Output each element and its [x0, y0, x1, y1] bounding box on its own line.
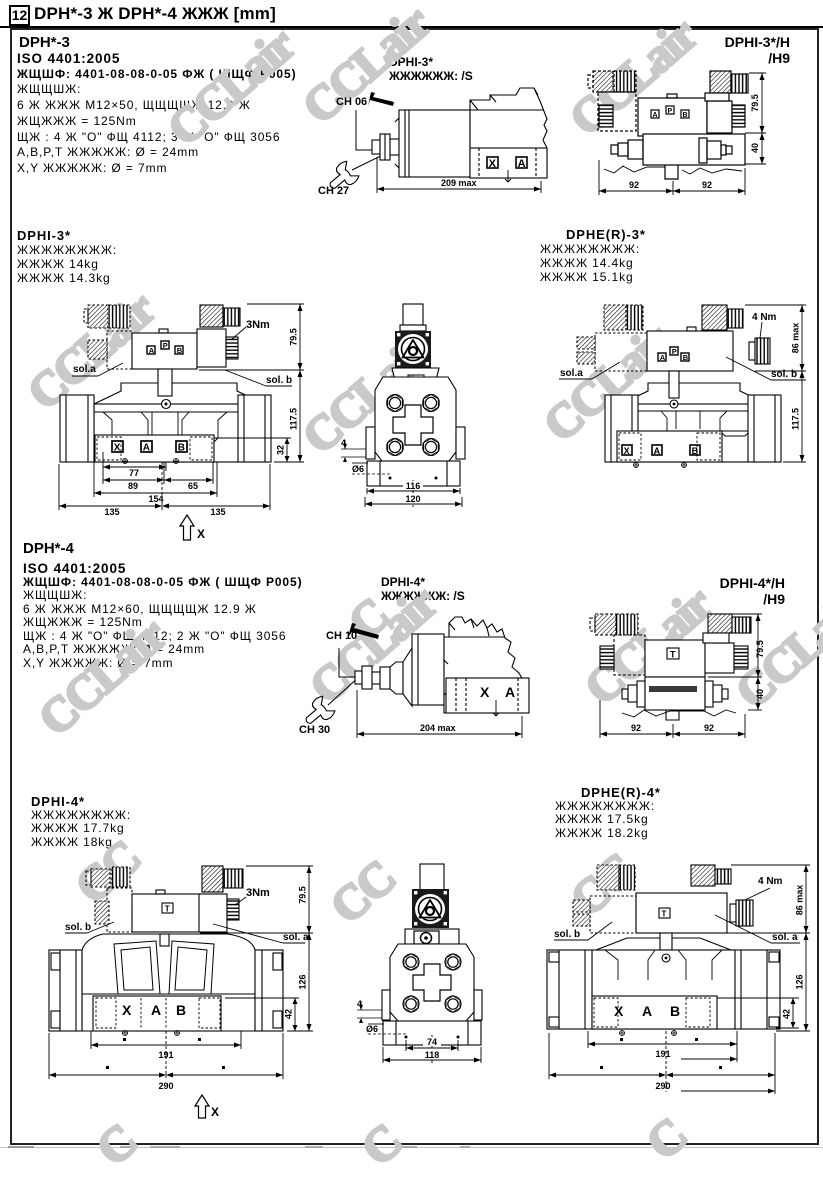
svg-text:Ø6: Ø6 — [352, 464, 364, 474]
svg-text:A: A — [518, 158, 526, 170]
svg-text:X: X — [614, 1003, 624, 1019]
svg-text:A: A — [654, 446, 661, 456]
svg-text:4 Nm: 4 Nm — [758, 876, 783, 887]
svg-text:117.5: 117.5 — [791, 408, 801, 430]
svg-text:B: B — [176, 1002, 186, 1018]
svg-text:42: 42 — [782, 1009, 792, 1019]
svg-text:116: 116 — [406, 481, 421, 491]
svg-text:77: 77 — [129, 468, 139, 478]
svg-text:X: X — [114, 443, 121, 454]
svg-text:T: T — [165, 905, 170, 914]
svg-text:B: B — [692, 446, 699, 456]
svg-text:4: 4 — [341, 438, 346, 448]
svg-text:sol. b: sol. b — [554, 929, 580, 940]
svg-text:A: A — [505, 684, 515, 700]
svg-text:A: A — [143, 443, 150, 454]
svg-text:B: B — [670, 1003, 680, 1019]
svg-text:79.5: 79.5 — [755, 640, 765, 658]
svg-text:135: 135 — [210, 507, 225, 517]
svg-text:120: 120 — [405, 494, 420, 504]
svg-text:A: A — [653, 112, 658, 119]
svg-text:A: A — [149, 346, 155, 355]
svg-text:117.5: 117.5 — [289, 408, 299, 430]
svg-text:40: 40 — [750, 143, 760, 153]
svg-text:79.5: 79.5 — [750, 94, 760, 112]
svg-text:118: 118 — [425, 1050, 440, 1060]
svg-text:209 max: 209 max — [441, 178, 477, 188]
svg-text:204 max: 204 max — [420, 723, 456, 733]
svg-text:135: 135 — [104, 507, 119, 517]
svg-text:290: 290 — [158, 1081, 173, 1091]
svg-text:B: B — [177, 346, 183, 355]
svg-text:sol. b: sol. b — [266, 375, 292, 386]
svg-text:79.5: 79.5 — [298, 886, 308, 904]
svg-text:sol. b: sol. b — [771, 369, 797, 380]
svg-text:74: 74 — [427, 1037, 437, 1047]
svg-text:92: 92 — [631, 723, 641, 733]
svg-text:290: 290 — [655, 1081, 670, 1091]
svg-text:126: 126 — [795, 974, 805, 989]
svg-text:X: X — [489, 158, 497, 170]
svg-text:sol.a: sol.a — [560, 368, 583, 379]
svg-text:X: X — [122, 1002, 132, 1018]
svg-text:X: X — [197, 527, 205, 541]
svg-text:Ø6: Ø6 — [366, 1024, 378, 1034]
svg-text:65: 65 — [188, 481, 198, 491]
svg-text:A: A — [151, 1002, 161, 1018]
svg-text:sol.a: sol.a — [73, 364, 96, 375]
svg-text:X: X — [480, 684, 490, 700]
svg-text:86 max: 86 max — [795, 885, 805, 916]
svg-text:T: T — [662, 910, 667, 919]
svg-text:A: A — [660, 353, 666, 362]
svg-text:86 max: 86 max — [791, 323, 801, 354]
svg-text:A: A — [642, 1003, 652, 1019]
svg-text:89: 89 — [128, 481, 138, 491]
svg-text:154: 154 — [148, 494, 163, 504]
svg-text:P: P — [668, 108, 673, 115]
svg-text:126: 126 — [298, 974, 308, 989]
svg-text:sol. b: sol. b — [65, 922, 91, 933]
svg-text:X: X — [211, 1105, 219, 1119]
svg-text:T: T — [670, 650, 676, 660]
svg-text:79.5: 79.5 — [289, 328, 299, 346]
svg-text:32: 32 — [276, 445, 286, 455]
svg-text:40: 40 — [755, 689, 765, 699]
svg-text:P: P — [672, 347, 677, 356]
svg-text:42: 42 — [284, 1009, 294, 1019]
svg-text:X: X — [624, 446, 630, 456]
svg-text:B: B — [683, 112, 688, 119]
svg-text:4 Nm: 4 Nm — [752, 312, 777, 323]
svg-text:P: P — [163, 341, 168, 350]
svg-text:3Nm: 3Nm — [246, 319, 270, 331]
svg-text:B: B — [178, 443, 185, 454]
svg-text:92: 92 — [629, 180, 639, 190]
svg-text:191: 191 — [655, 1049, 670, 1059]
svg-text:sol. a: sol. a — [283, 932, 309, 943]
svg-text:4: 4 — [357, 999, 362, 1009]
svg-text:92: 92 — [704, 723, 714, 733]
svg-text:191: 191 — [158, 1050, 173, 1060]
svg-text:B: B — [683, 353, 689, 362]
svg-text:92: 92 — [702, 180, 712, 190]
svg-text:sol. a: sol. a — [772, 932, 798, 943]
svg-text:3Nm: 3Nm — [246, 887, 270, 899]
